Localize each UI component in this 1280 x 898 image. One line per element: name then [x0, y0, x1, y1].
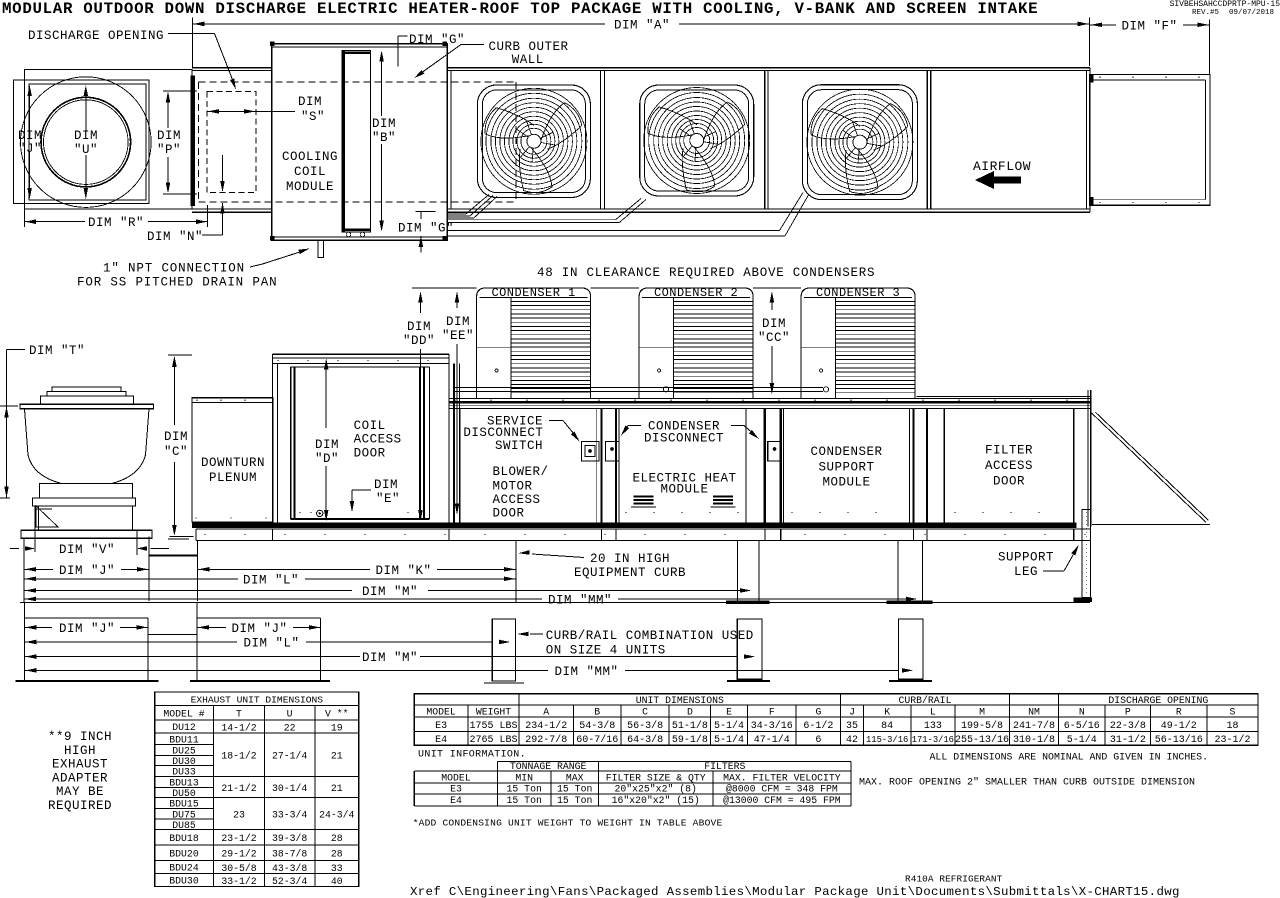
- svg-text:60-7/16: 60-7/16: [576, 734, 618, 746]
- svg-text:F: F: [769, 706, 775, 717]
- svg-text:J: J: [849, 706, 855, 717]
- svg-text:28: 28: [331, 833, 343, 844]
- svg-text:PLENUM: PLENUM: [209, 471, 257, 485]
- svg-text:@13000 CFM = 495 FPM: @13000 CFM = 495 FPM: [723, 795, 841, 806]
- svg-text:DIM: DIM: [298, 95, 322, 109]
- svg-text:DU25: DU25: [172, 745, 196, 756]
- svg-text:18-1/2: 18-1/2: [221, 751, 256, 762]
- svg-text:FOR SS PITCHED DRAIN PAN: FOR SS PITCHED DRAIN PAN: [77, 276, 277, 290]
- svg-text:LEG: LEG: [1014, 565, 1038, 579]
- svg-text:DIM "G": DIM "G": [409, 33, 465, 47]
- svg-text:BDU15: BDU15: [169, 799, 199, 810]
- svg-text:54-3/8: 54-3/8: [579, 720, 615, 732]
- svg-text:15 Ton: 15 Ton: [557, 784, 592, 795]
- svg-text:MODULAR OUTDOOR DOWN DISCHARGE: MODULAR OUTDOOR DOWN DISCHARGE ELECTRIC …: [2, 0, 1038, 18]
- svg-text:DU30: DU30: [172, 756, 196, 767]
- svg-text:SUPPORT: SUPPORT: [998, 551, 1054, 565]
- svg-text:30-5/8: 30-5/8: [221, 863, 256, 874]
- svg-text:21-1/2: 21-1/2: [221, 783, 256, 794]
- svg-text:DU12: DU12: [172, 722, 196, 733]
- svg-text:DIM: DIM: [446, 315, 470, 329]
- svg-text:N: N: [1079, 706, 1085, 717]
- svg-text:DIM: DIM: [164, 430, 188, 444]
- svg-text:HIGH: HIGH: [64, 744, 96, 758]
- svg-text:24-3/4: 24-3/4: [319, 809, 354, 820]
- svg-text:DIM: DIM: [74, 129, 98, 143]
- svg-text:16"x20"x2" (15): 16"x20"x2" (15): [612, 795, 700, 806]
- svg-text:DIM: DIM: [407, 320, 431, 334]
- svg-text:E3: E3: [435, 721, 447, 732]
- svg-text:CONDENSER: CONDENSER: [810, 445, 882, 459]
- svg-text:UNIT DIMENSIONS: UNIT DIMENSIONS: [636, 695, 724, 706]
- svg-text:6-1/2: 6-1/2: [803, 720, 833, 732]
- svg-text:R: R: [1176, 706, 1182, 717]
- svg-text:52-3/4: 52-3/4: [272, 876, 307, 887]
- svg-text:20 IN HIGH: 20 IN HIGH: [590, 552, 670, 566]
- svg-text:241-7/8: 241-7/8: [1013, 720, 1055, 732]
- svg-text:@8000 CFM = 348 FPM: @8000 CFM = 348 FPM: [726, 784, 838, 795]
- svg-text:E: E: [726, 706, 732, 717]
- svg-text:MODULE: MODULE: [660, 483, 708, 497]
- svg-text:"D": "D": [315, 452, 339, 466]
- svg-text:BDU13: BDU13: [169, 777, 199, 788]
- svg-text:"P": "P": [157, 143, 181, 157]
- svg-text:30-1/4: 30-1/4: [272, 783, 307, 794]
- svg-text:CONDENSER 2: CONDENSER 2: [654, 286, 738, 300]
- svg-text:S: S: [1230, 706, 1236, 717]
- svg-text:SWITCH: SWITCH: [495, 439, 543, 453]
- svg-text:"CC": "CC": [758, 331, 790, 345]
- svg-text:56-3/8: 56-3/8: [627, 720, 663, 732]
- svg-text:MODEL #: MODEL #: [163, 709, 204, 720]
- svg-text:MAY BE: MAY BE: [56, 785, 104, 799]
- svg-text:DU85: DU85: [172, 820, 196, 831]
- svg-text:27-1/4: 27-1/4: [272, 751, 307, 762]
- svg-text:DIM "M": DIM "M": [362, 585, 418, 599]
- svg-text:MODEL: MODEL: [441, 772, 471, 783]
- svg-text:5-1/4: 5-1/4: [1067, 734, 1097, 746]
- svg-text:2765 LBS: 2765 LBS: [469, 735, 517, 746]
- svg-text:DOOR: DOOR: [993, 475, 1025, 489]
- svg-text:DISCHARGE OPENING: DISCHARGE OPENING: [1108, 695, 1208, 706]
- svg-text:A: A: [543, 706, 549, 717]
- svg-text:ADAPTER: ADAPTER: [52, 771, 108, 785]
- svg-text:48 IN CLEARANCE REQUIRED ABOVE: 48 IN CLEARANCE REQUIRED ABOVE CONDENSER…: [537, 266, 875, 280]
- svg-text:MODULE: MODULE: [822, 476, 870, 490]
- svg-text:REV.#5: REV.#5: [1192, 9, 1220, 17]
- svg-text:DIM "J": DIM "J": [59, 622, 115, 636]
- svg-text:19: 19: [331, 722, 343, 733]
- svg-text:21: 21: [331, 751, 343, 762]
- svg-text:*ADD CONDENSING UNIT WEIGHT TO: *ADD CONDENSING UNIT WEIGHT TO WEIGHT IN…: [413, 818, 723, 829]
- svg-text:15 Ton: 15 Ton: [507, 795, 542, 806]
- svg-text:M: M: [979, 706, 985, 717]
- svg-text:51-1/8: 51-1/8: [672, 720, 708, 732]
- svg-text:15 Ton: 15 Ton: [507, 784, 542, 795]
- svg-text:64-3/8: 64-3/8: [627, 734, 663, 746]
- svg-text:MIN: MIN: [515, 772, 533, 783]
- svg-text:171-3/16: 171-3/16: [912, 735, 954, 745]
- svg-text:23-1/2: 23-1/2: [1214, 734, 1250, 746]
- svg-text:DOOR: DOOR: [493, 507, 525, 521]
- svg-text:AIRFLOW: AIRFLOW: [973, 159, 1031, 174]
- svg-text:42: 42: [846, 735, 858, 746]
- svg-text:310-1/8: 310-1/8: [1013, 734, 1055, 746]
- svg-text:31-1/2: 31-1/2: [1110, 734, 1146, 746]
- svg-text:"U": "U": [74, 143, 98, 157]
- svg-text:DIM "A": DIM "A": [614, 19, 670, 33]
- svg-text:6: 6: [815, 735, 821, 746]
- svg-text:EQUIPMENT CURB: EQUIPMENT CURB: [574, 566, 686, 580]
- svg-text:DIM "G": DIM "G": [398, 222, 454, 236]
- svg-text:43-3/8: 43-3/8: [272, 863, 307, 874]
- svg-text:"S": "S": [301, 110, 325, 124]
- svg-text:V **: V **: [325, 709, 349, 720]
- svg-text:255-13/16: 255-13/16: [955, 734, 1009, 746]
- svg-text:P: P: [1125, 706, 1131, 717]
- svg-text:EXHAUST UNIT DIMENSIONS: EXHAUST UNIT DIMENSIONS: [191, 695, 324, 706]
- svg-text:DIM: DIM: [372, 117, 396, 131]
- svg-text:47-1/4: 47-1/4: [754, 734, 790, 746]
- svg-text:115-3/16: 115-3/16: [866, 735, 908, 745]
- svg-text:L: L: [930, 706, 936, 717]
- svg-text:DU33: DU33: [172, 767, 196, 778]
- svg-text:U: U: [287, 709, 293, 720]
- svg-text:"DD": "DD": [403, 334, 435, 348]
- svg-text:SUPPORT: SUPPORT: [818, 461, 874, 475]
- svg-text:C: C: [642, 706, 648, 717]
- svg-text:29-1/2: 29-1/2: [221, 849, 256, 860]
- svg-text:CURB/RAIL COMBINATION USED: CURB/RAIL COMBINATION USED: [546, 629, 754, 643]
- svg-text:COIL: COIL: [354, 419, 386, 433]
- svg-text:22: 22: [284, 722, 296, 733]
- svg-text:K: K: [884, 706, 890, 717]
- svg-text:33-3/4: 33-3/4: [272, 809, 307, 820]
- svg-text:"J": "J": [18, 142, 42, 156]
- svg-text:23: 23: [233, 809, 245, 820]
- svg-text:MOTOR: MOTOR: [493, 480, 533, 494]
- svg-text:1" NPT CONNECTION: 1" NPT CONNECTION: [103, 262, 245, 276]
- svg-text:NM: NM: [1028, 706, 1040, 717]
- svg-text:DIM "M": DIM "M": [362, 651, 418, 665]
- svg-text:59-1/8: 59-1/8: [672, 734, 708, 746]
- svg-text:DIM "N": DIM "N": [147, 230, 203, 244]
- svg-text:BDU20: BDU20: [169, 848, 199, 859]
- svg-text:E3: E3: [450, 784, 462, 795]
- svg-text:COOLING: COOLING: [282, 150, 338, 164]
- svg-text:WALL: WALL: [512, 53, 544, 67]
- svg-text:MAX. ROOF OPENING 2" SMALLER T: MAX. ROOF OPENING 2" SMALLER THAN CURB O…: [859, 777, 1195, 789]
- svg-text:ON SIZE 4 UNITS: ON SIZE 4 UNITS: [546, 644, 666, 658]
- svg-text:"E": "E": [376, 492, 400, 506]
- svg-text:SIVBEHSAHCCDPRTP-MPU-15: SIVBEHSAHCCDPRTP-MPU-15: [1170, 0, 1280, 9]
- svg-text:14-1/2: 14-1/2: [221, 722, 256, 733]
- svg-text:49-1/2: 49-1/2: [1161, 720, 1197, 732]
- svg-text:REQUIRED: REQUIRED: [48, 799, 112, 813]
- svg-text:DIM "R": DIM "R": [88, 216, 144, 230]
- svg-text:FILTERS: FILTERS: [704, 761, 745, 772]
- svg-text:DIM: DIM: [762, 317, 786, 331]
- svg-text:G: G: [815, 706, 821, 717]
- svg-text:DIM: DIM: [315, 438, 339, 452]
- svg-text:ACCESS: ACCESS: [493, 493, 541, 507]
- svg-text:DIM: DIM: [374, 478, 398, 492]
- svg-text:38-7/8: 38-7/8: [272, 849, 307, 860]
- svg-text:COIL: COIL: [294, 165, 326, 179]
- svg-text:DIM "F": DIM "F": [1121, 20, 1177, 34]
- svg-text:DIM "L": DIM "L": [243, 637, 299, 651]
- svg-text:DIM: DIM: [18, 129, 42, 143]
- svg-text:E4: E4: [450, 795, 462, 806]
- svg-text:WEIGHT: WEIGHT: [476, 706, 511, 717]
- svg-text:5-1/4: 5-1/4: [714, 720, 744, 732]
- svg-text:09/07/2018: 09/07/2018: [1229, 9, 1274, 17]
- svg-text:40: 40: [331, 876, 343, 887]
- svg-text:"C": "C": [164, 445, 188, 459]
- svg-text:133: 133: [924, 721, 942, 732]
- svg-text:199-5/8: 199-5/8: [961, 720, 1003, 732]
- svg-text:DISCHARGE OPENING: DISCHARGE OPENING: [28, 29, 164, 43]
- svg-text:MODULE: MODULE: [286, 180, 334, 194]
- svg-text:28: 28: [331, 849, 343, 860]
- svg-text:34-3/16: 34-3/16: [751, 720, 793, 732]
- svg-text:DU75: DU75: [172, 809, 196, 820]
- svg-text:20"x25"x2" (8): 20"x25"x2" (8): [615, 784, 697, 795]
- svg-text:DIM "MM": DIM "MM": [554, 665, 618, 679]
- svg-text:MAX: MAX: [566, 772, 584, 783]
- svg-text:MODEL: MODEL: [426, 706, 456, 717]
- svg-text:FILTER: FILTER: [985, 444, 1033, 458]
- svg-text:1755 LBS: 1755 LBS: [469, 721, 517, 732]
- svg-text:BDU30: BDU30: [169, 876, 199, 887]
- svg-text:DIM: DIM: [157, 129, 181, 143]
- svg-text:Xref C\Engineering\Fans\Packag: Xref C\Engineering\Fans\Packaged Assembl…: [410, 885, 1180, 898]
- svg-text:CONDENSER 1: CONDENSER 1: [492, 286, 576, 300]
- svg-text:CURB OUTER: CURB OUTER: [489, 40, 569, 54]
- svg-text:TONNAGE RANGE: TONNAGE RANGE: [510, 761, 587, 772]
- svg-text:DIM "V": DIM "V": [59, 543, 115, 557]
- svg-text:33-1/2: 33-1/2: [221, 876, 256, 887]
- svg-text:DU50: DU50: [172, 788, 196, 799]
- svg-text:BDU11: BDU11: [169, 734, 199, 745]
- svg-text:56-13/16: 56-13/16: [1155, 734, 1203, 746]
- svg-text:5-1/4: 5-1/4: [714, 734, 744, 746]
- svg-text:DIM "T": DIM "T": [29, 344, 85, 358]
- svg-text:FILTER SIZE & QTY: FILTER SIZE & QTY: [606, 772, 706, 783]
- svg-text:DIM "J": DIM "J": [59, 564, 115, 578]
- svg-text:MAX. FILTER VELOCITY: MAX. FILTER VELOCITY: [723, 772, 841, 783]
- svg-text:6-5/16: 6-5/16: [1064, 720, 1100, 732]
- svg-text:BLOWER/: BLOWER/: [493, 465, 549, 479]
- svg-text:B: B: [594, 706, 600, 717]
- svg-text:UNIT INFORMATION.: UNIT INFORMATION.: [418, 750, 526, 761]
- svg-text:"B": "B": [372, 131, 396, 145]
- svg-text:DIM "L": DIM "L": [243, 574, 299, 588]
- svg-text:E4: E4: [435, 735, 447, 746]
- svg-text:T: T: [236, 709, 242, 720]
- svg-text:BDU18: BDU18: [169, 833, 199, 844]
- svg-text:22-3/8: 22-3/8: [1110, 720, 1146, 732]
- svg-text:R410A REFRIGERANT: R410A REFRIGERANT: [905, 874, 1003, 885]
- svg-text:DIM "MM": DIM "MM": [548, 594, 612, 608]
- svg-text:39-3/8: 39-3/8: [272, 833, 307, 844]
- svg-text:"EE": "EE": [442, 329, 474, 343]
- svg-text:33: 33: [331, 863, 343, 874]
- svg-text:ALL DIMENSIONS ARE NOMINAL AND: ALL DIMENSIONS ARE NOMINAL AND GIVEN IN …: [930, 752, 1209, 763]
- svg-text:CURB/RAIL: CURB/RAIL: [899, 695, 952, 706]
- svg-text:CONDENSER 3: CONDENSER 3: [816, 286, 900, 300]
- svg-text:DISCONNECT: DISCONNECT: [644, 432, 724, 446]
- svg-text:15 Ton: 15 Ton: [557, 795, 592, 806]
- svg-text:BDU24: BDU24: [169, 863, 199, 874]
- svg-text:23-1/2: 23-1/2: [221, 833, 256, 844]
- svg-text:18: 18: [1226, 721, 1238, 732]
- svg-text:ACCESS: ACCESS: [985, 459, 1033, 473]
- svg-text:292-7/8: 292-7/8: [525, 734, 567, 746]
- svg-text:D: D: [687, 706, 693, 717]
- svg-text:ACCESS: ACCESS: [354, 433, 402, 447]
- svg-text:EXHAUST: EXHAUST: [52, 758, 108, 772]
- svg-text:35: 35: [846, 721, 858, 732]
- svg-text:DOWNTURN: DOWNTURN: [201, 456, 265, 470]
- svg-text:DOOR: DOOR: [354, 447, 386, 461]
- svg-text:234-1/2: 234-1/2: [525, 720, 567, 732]
- svg-text:**9 INCH: **9 INCH: [48, 730, 112, 744]
- svg-text:DIM "K": DIM "K": [375, 564, 431, 578]
- svg-text:DIM "J": DIM "J": [231, 622, 287, 636]
- svg-text:21: 21: [331, 783, 343, 794]
- svg-text:84: 84: [881, 721, 893, 732]
